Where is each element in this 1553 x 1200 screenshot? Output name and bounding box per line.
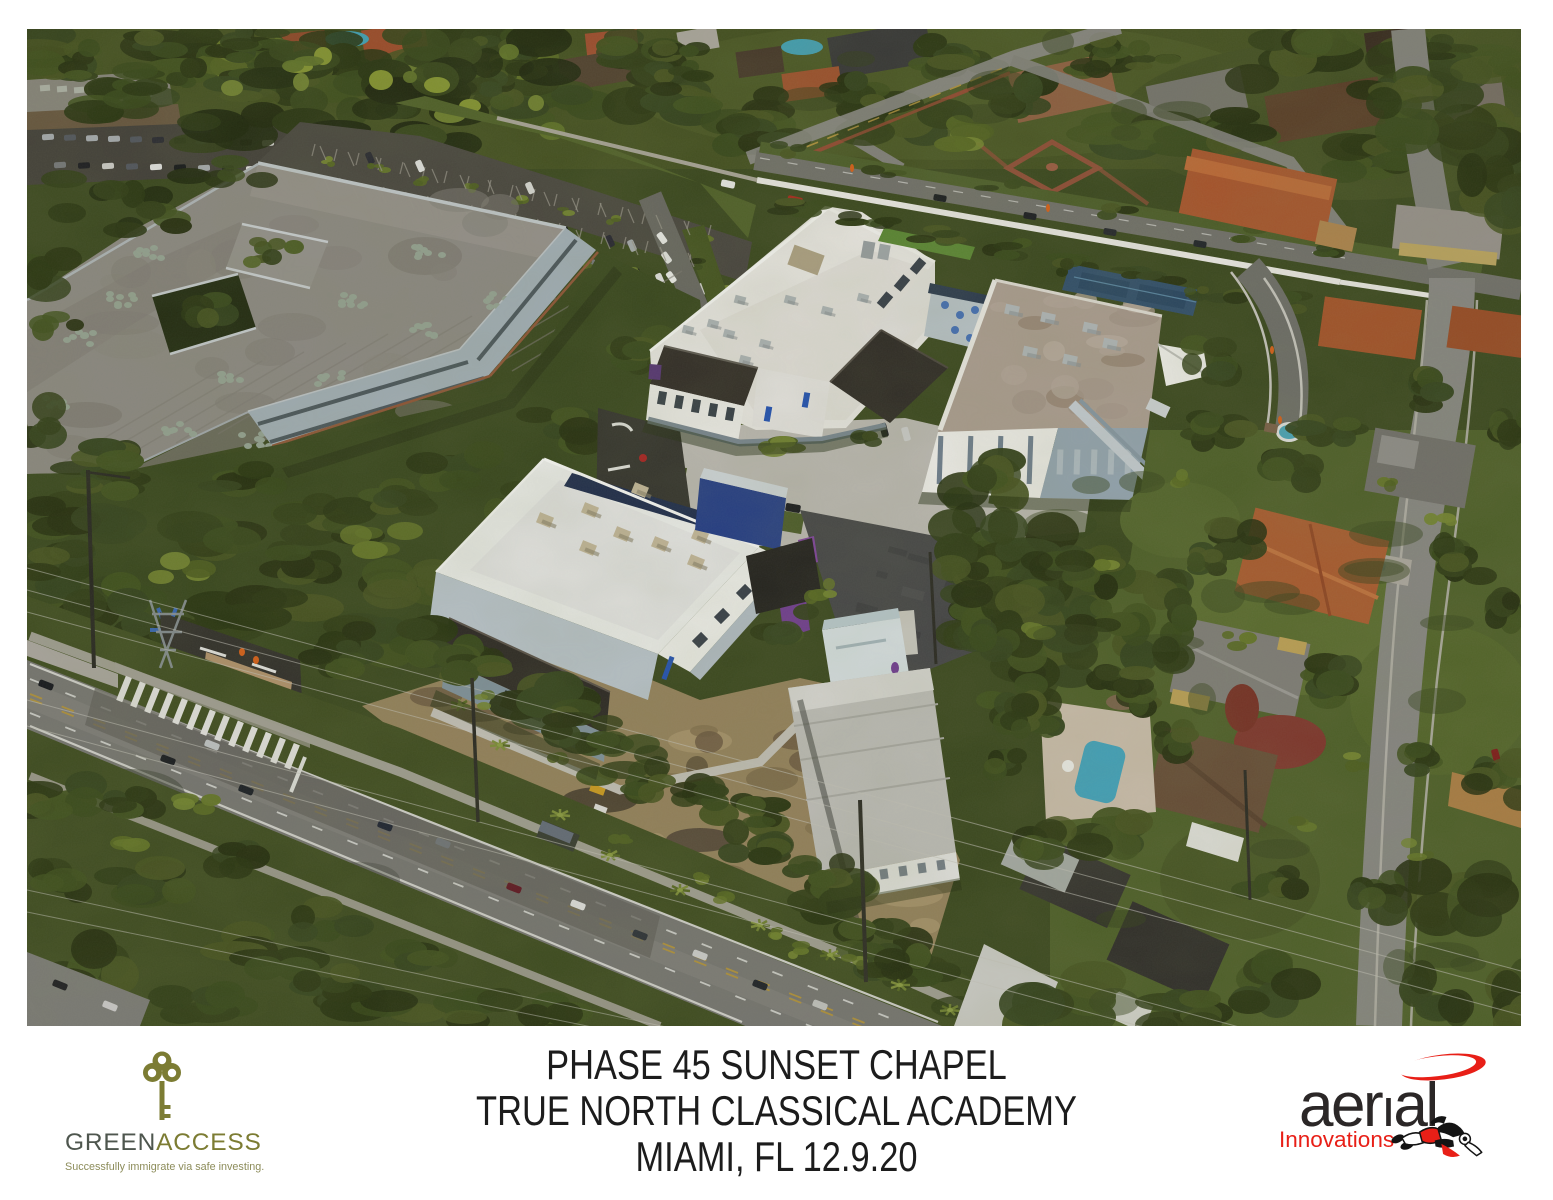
svg-text:Innovations: Innovations [1279, 1127, 1394, 1152]
